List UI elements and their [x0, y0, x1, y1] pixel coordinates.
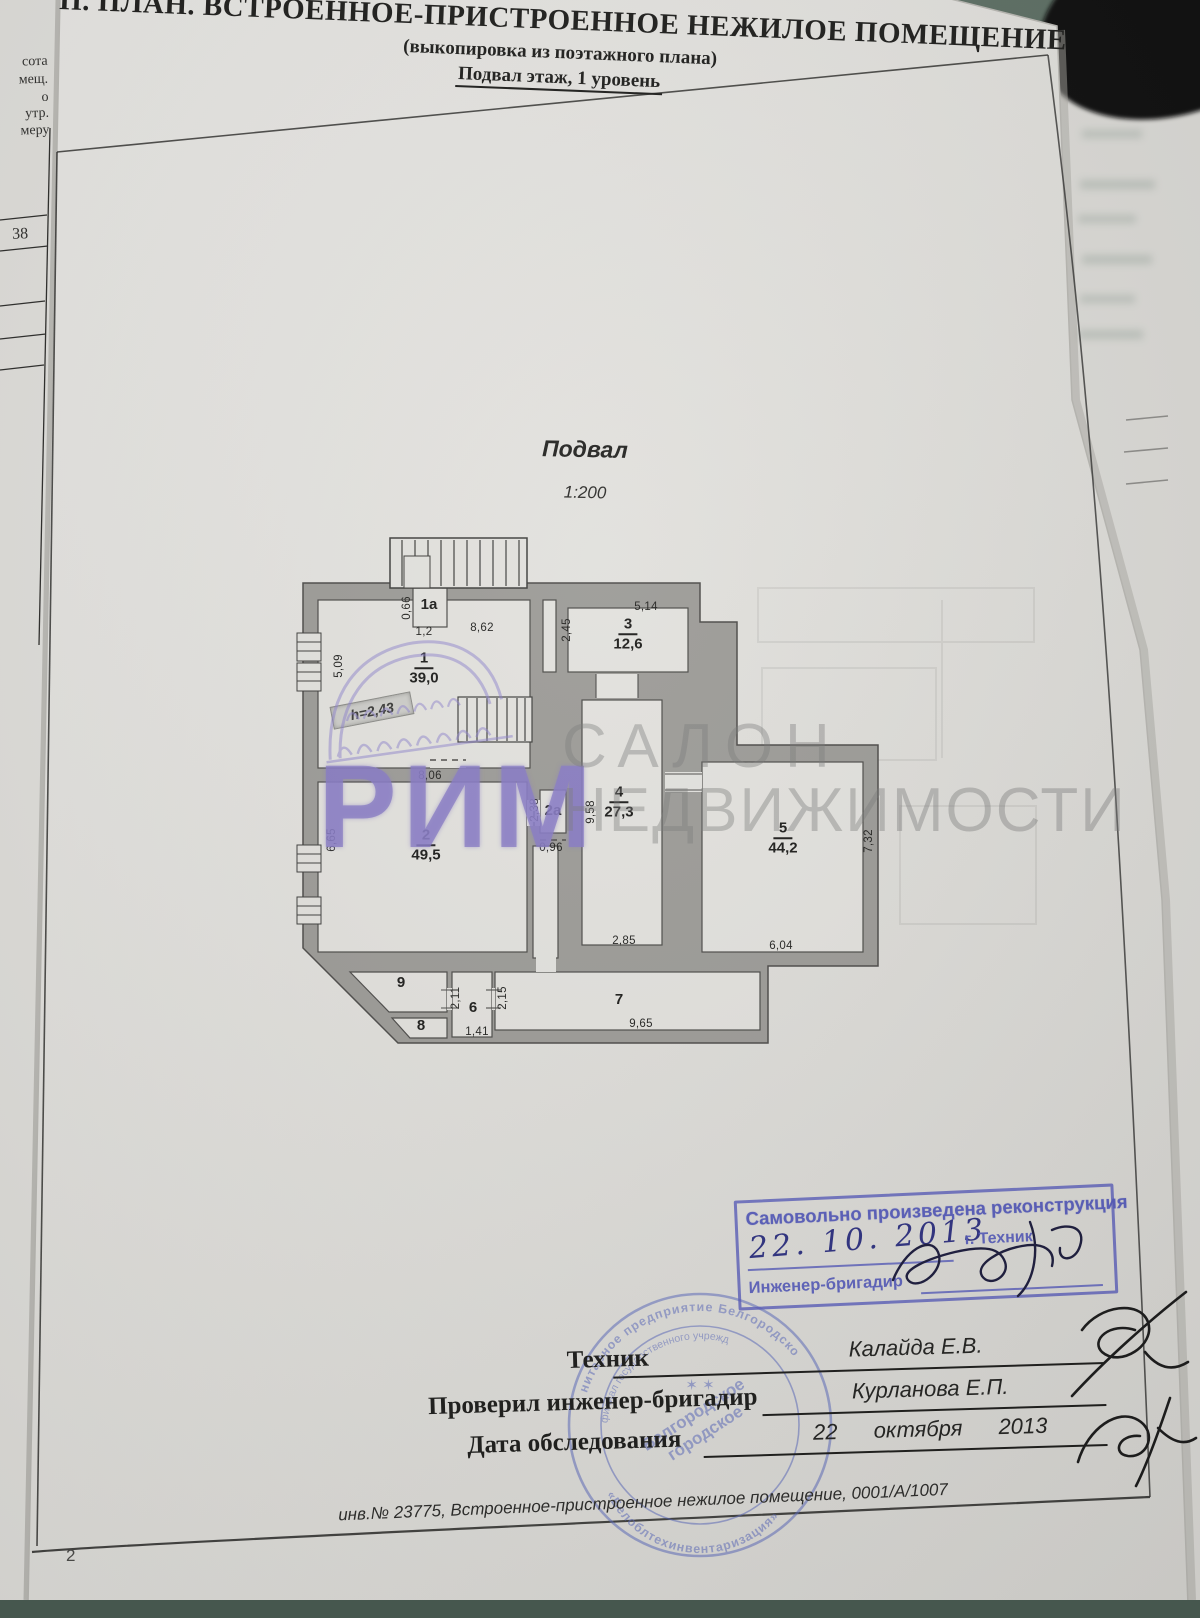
- page-number: 2: [66, 1546, 75, 1566]
- checker-name: Курланова Е.П.: [851, 1374, 1008, 1405]
- technician-name: Калайда Е.В.: [848, 1333, 983, 1363]
- survey-date-label: Дата обследования: [467, 1426, 682, 1460]
- document-photo: { "header": { "title": "П. ПЛАН. ВСТРОЕН…: [0, 0, 1200, 1600]
- signature-block: Техник Калайда Е.В. Проверил инженер-бри…: [0, 0, 1200, 1618]
- technician-label: Техник: [566, 1345, 649, 1375]
- survey-date-value: 22 октября 2013: [813, 1413, 1048, 1446]
- checker-line: [762, 1404, 1106, 1416]
- technician-line: [613, 1362, 1105, 1379]
- checker-label: Проверил инженер-бригадир: [428, 1383, 758, 1421]
- survey-date-line: [704, 1444, 1108, 1458]
